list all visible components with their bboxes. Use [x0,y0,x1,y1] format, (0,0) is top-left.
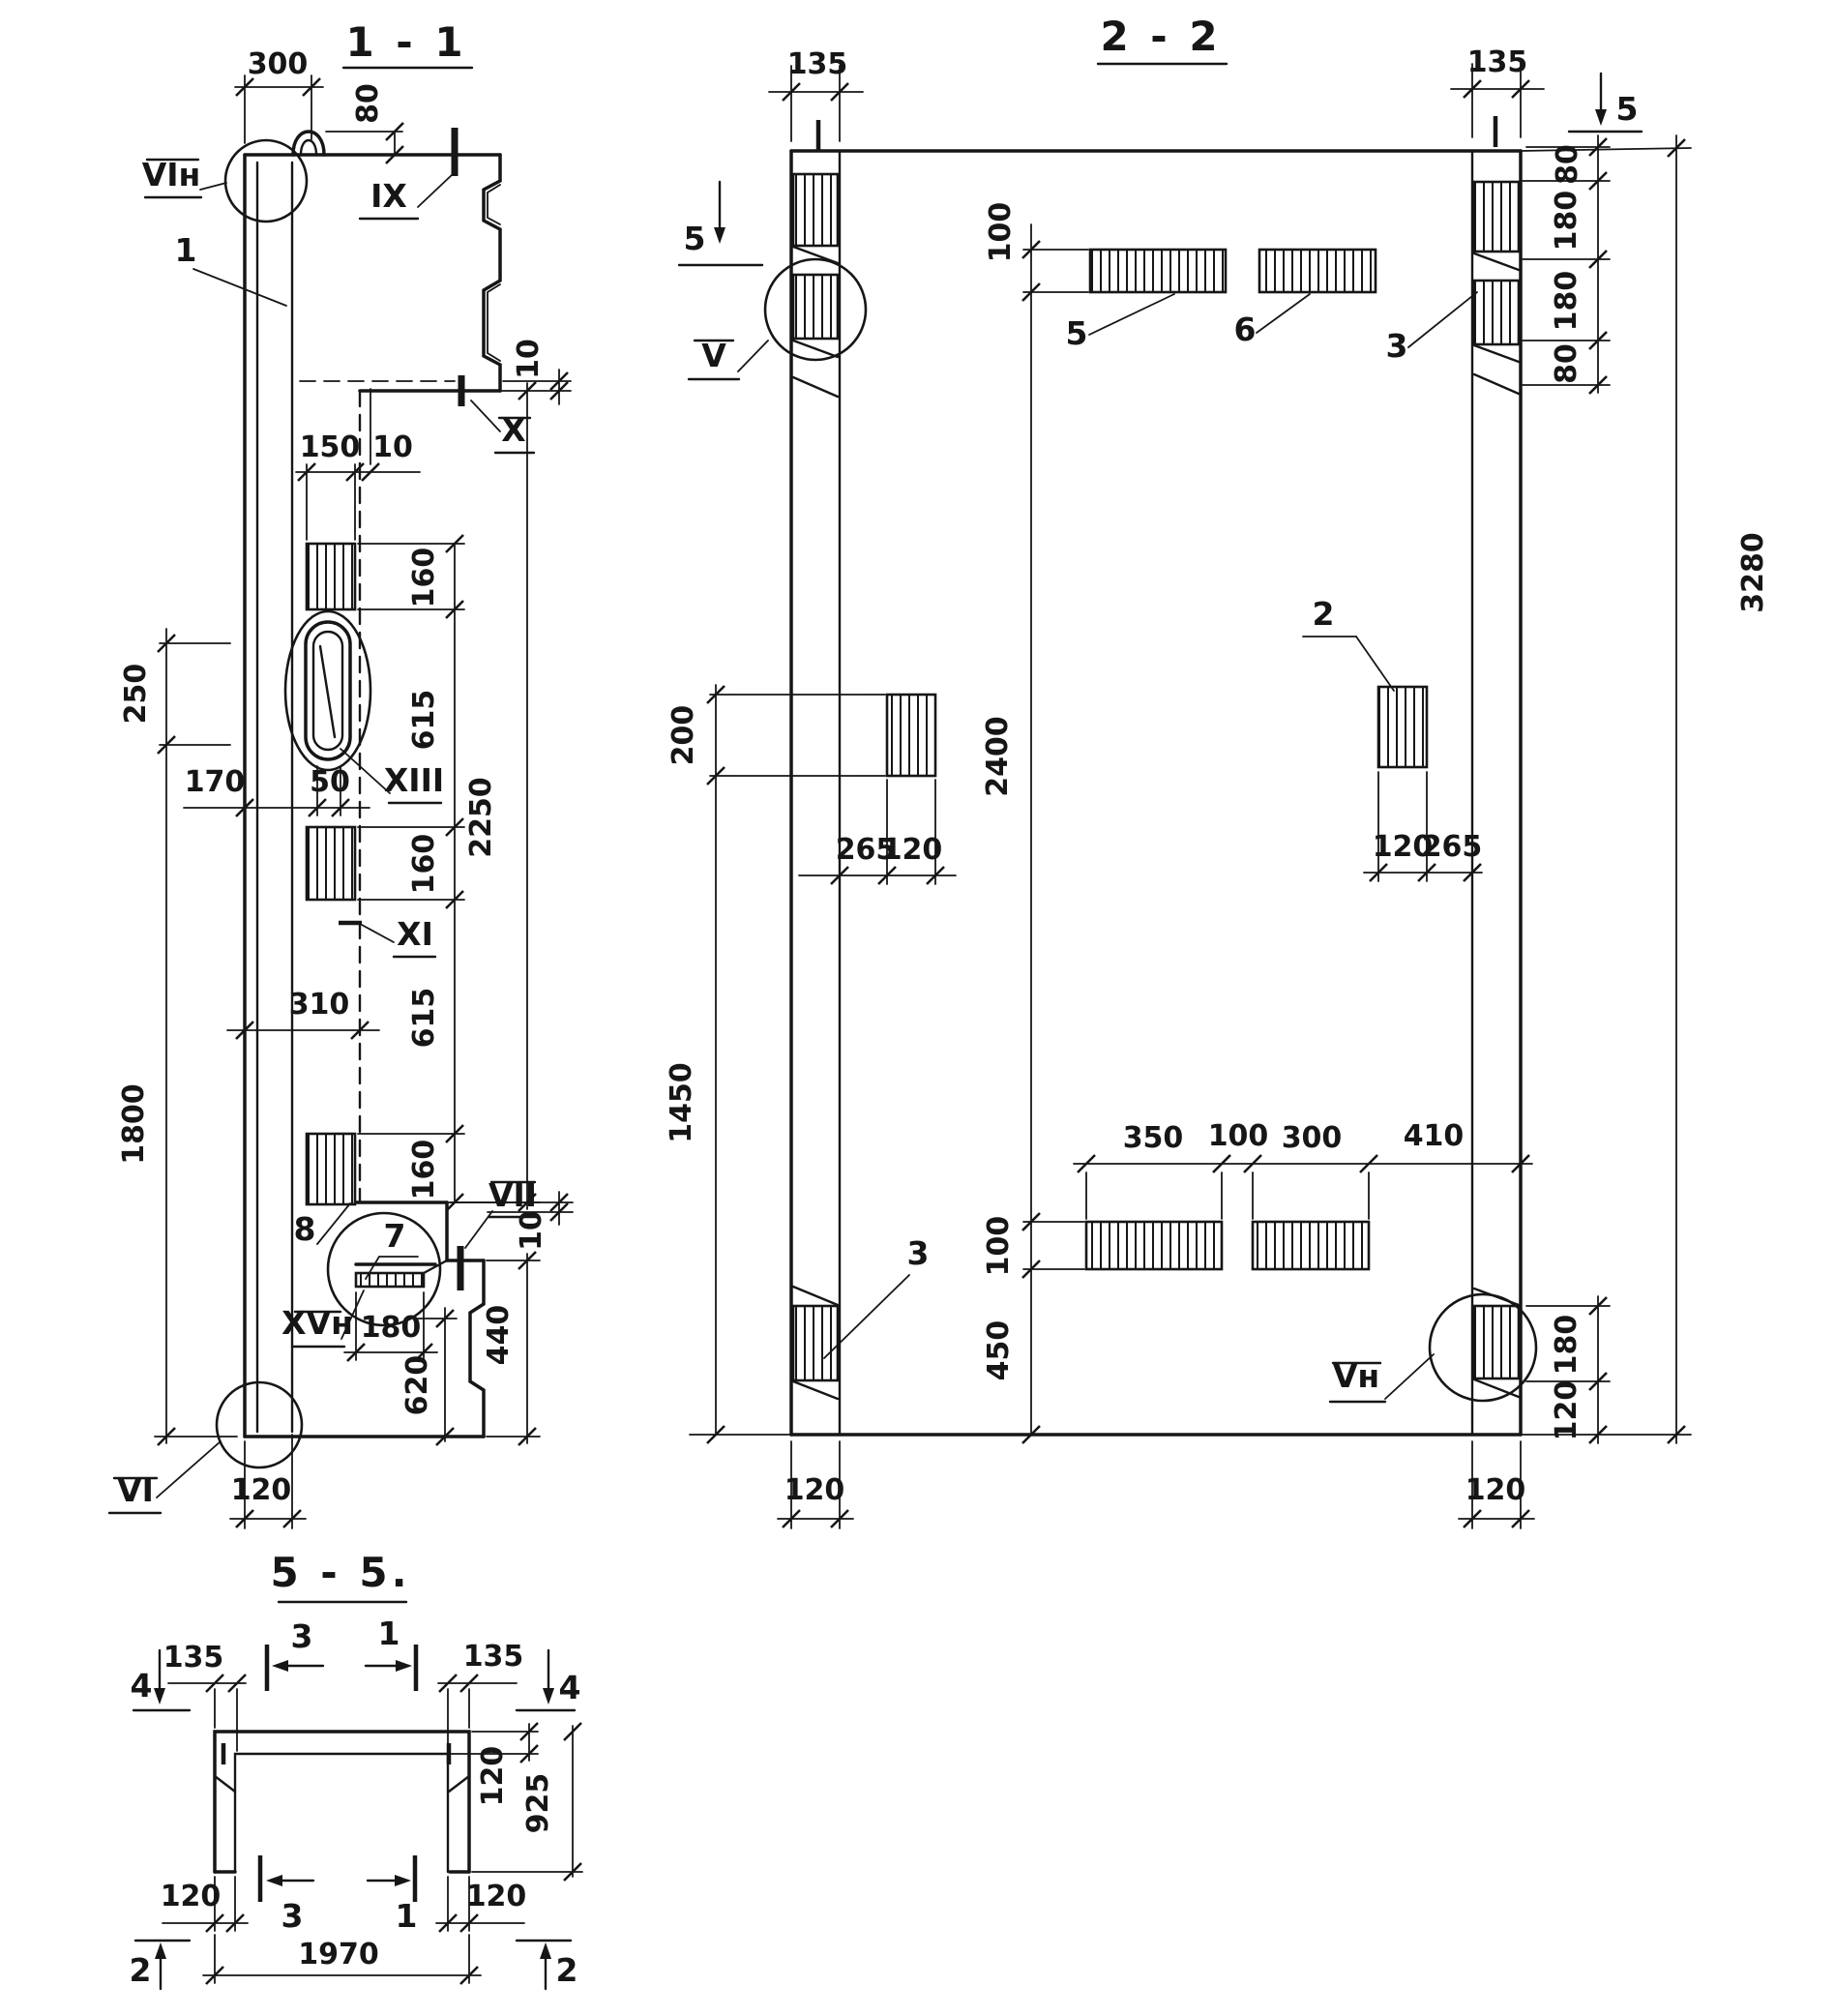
label-XIII: XIII [384,761,444,799]
dim-10-x: 10 [512,339,546,379]
embed-plate-6 [1259,250,1376,292]
dim-160-a: 160 [407,548,441,608]
dim-3280: 3280 [1736,532,1770,613]
embed-plate-br [1253,1222,1369,1269]
dim-180: 180 [361,1311,422,1345]
embed-plate-bl [1086,1222,1222,1269]
keyway-left [887,695,935,776]
dim-1970: 1970 [298,1938,379,1972]
dim-120-bottom-right: 120 [466,1880,527,1913]
dim-180-b: 180 [1550,271,1583,332]
dim-410: 410 [1404,1119,1465,1153]
dim-135-right: 135 [1467,45,1528,79]
label-VIn: VIн [142,156,201,193]
dim-135-right: 135 [463,1640,524,1674]
marker-5-right-label: 5 [1616,90,1639,128]
label-part-3-top: 3 [1386,327,1408,365]
label-part-8: 8 [294,1210,316,1248]
dim-300: 300 [1282,1121,1343,1155]
dim-1450: 1450 [665,1062,698,1143]
dim-150: 150 [300,430,361,464]
dim-100-top: 100 [984,202,1018,263]
dim-615-a: 615 [407,690,441,751]
dim-120-bottom-left: 120 [161,1880,222,1913]
dim-2250: 2250 [464,777,498,858]
dim-350: 350 [1123,1121,1184,1155]
dim-120-under-right-rib: 120 [1465,1473,1526,1507]
dim-265-right: 265 [1422,830,1483,864]
dim-170: 170 [185,765,246,799]
dim-50: 50 [310,765,350,799]
dim-100-row: 100 [1208,1119,1269,1153]
dim-135-left: 135 [787,47,848,81]
keyway-right-2 [1378,687,1427,767]
dim-135-left: 135 [163,1641,224,1675]
marker-2-right-label: 2 [556,1951,578,1989]
dim-1800: 1800 [117,1083,151,1165]
section-2-2-title: 2 - 2 [1100,13,1221,60]
dim-180-br: 180 [1550,1315,1583,1376]
label-XI: XI [397,915,433,953]
section-1-1-title: 1 - 1 [345,18,466,66]
dim-310: 310 [289,988,350,1022]
dim-300: 300 [248,47,309,81]
dim-100-bottom: 100 [982,1216,1016,1277]
embed-plate-5 [1090,250,1226,292]
dim-80: 80 [351,83,385,124]
dim-2400: 2400 [981,716,1015,797]
dim-120-under-left-rib: 120 [784,1473,845,1507]
label-part-7: 7 [384,1217,406,1255]
marker-1-bottom-label: 1 [396,1897,418,1935]
label-IX: IX [370,177,407,215]
section-5-5-title: 5 - 5. [270,1549,410,1596]
marker-1-top-label: 1 [378,1615,400,1652]
dim-120-flange: 120 [476,1746,510,1807]
engineering-drawing: 1 - 1 [0,0,1835,2016]
marker-4-right-label: 4 [559,1669,581,1706]
dim-450: 450 [982,1320,1016,1381]
dim-440: 440 [482,1305,516,1366]
dim-200: 200 [666,705,700,766]
dim-250: 250 [119,664,153,725]
dim-615-b: 615 [407,988,441,1049]
support-shelf-hatch [356,1273,424,1287]
marker-3-bottom-label: 3 [281,1897,304,1935]
drawing-sheet: 1 - 1 [0,0,1835,2016]
dim-620: 620 [400,1355,434,1416]
dim-120: 120 [231,1473,292,1507]
dim-80-a: 80 [1551,144,1584,185]
label-part-6: 6 [1234,311,1257,348]
dim-120-left: 120 [882,833,943,867]
label-V: V [701,337,726,374]
dim-160-c: 160 [407,1140,441,1201]
dim-10-vii: 10 [515,1210,548,1251]
dim-80-b: 80 [1550,343,1583,384]
dim-160-b: 160 [407,834,441,895]
marker-2-left-label: 2 [130,1951,152,1989]
dim-120-br: 120 [1550,1380,1583,1441]
dim-10-top: 10 [372,430,413,464]
dim-925: 925 [521,1773,555,1834]
dim-180-a: 180 [1550,191,1583,252]
label-part-1: 1 [175,231,197,269]
label-part-3-bottom: 3 [907,1234,930,1272]
marker-5-left-label: 5 [684,220,706,257]
label-part-2: 2 [1313,595,1335,633]
marker-4-left-label: 4 [131,1667,153,1705]
label-part-5: 5 [1066,314,1088,352]
marker-3-top-label: 3 [291,1617,313,1655]
